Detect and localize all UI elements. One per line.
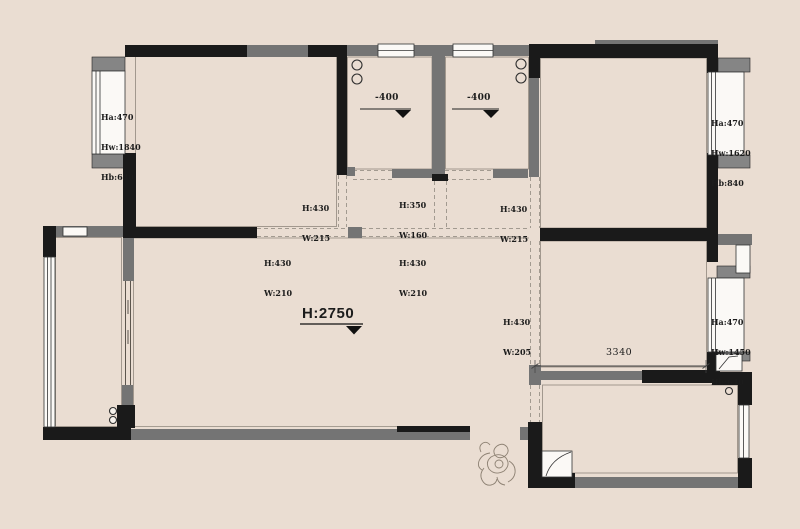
elevation-marker-icon (360, 109, 499, 118)
sliding-door (126, 281, 131, 385)
corner-diagonal-box (716, 354, 742, 371)
walls-secondary (56, 40, 752, 488)
flue-box (736, 245, 750, 273)
window-bottom-right (739, 405, 749, 458)
window-caps (92, 57, 750, 361)
window-top-right (708, 72, 744, 155)
door-swing-icon (542, 451, 572, 477)
window-top-seg-a (378, 44, 414, 57)
room-outlines (56, 57, 738, 474)
ceiling-marker-icon (300, 324, 363, 335)
window-balcony (44, 257, 55, 427)
person-sketch (478, 442, 515, 485)
window-mid-right (708, 278, 744, 352)
opening-dashed-lines (257, 171, 540, 423)
floor-plan-canvas: Ha:470 Hw:1840 Hb:640 Ha:470 Hw:1620 Hb:… (0, 0, 800, 529)
window-top-seg-b (453, 44, 493, 57)
floor-plan-drawing (0, 0, 800, 529)
window-balcony-top-seg (63, 227, 87, 236)
window-left (92, 71, 125, 154)
